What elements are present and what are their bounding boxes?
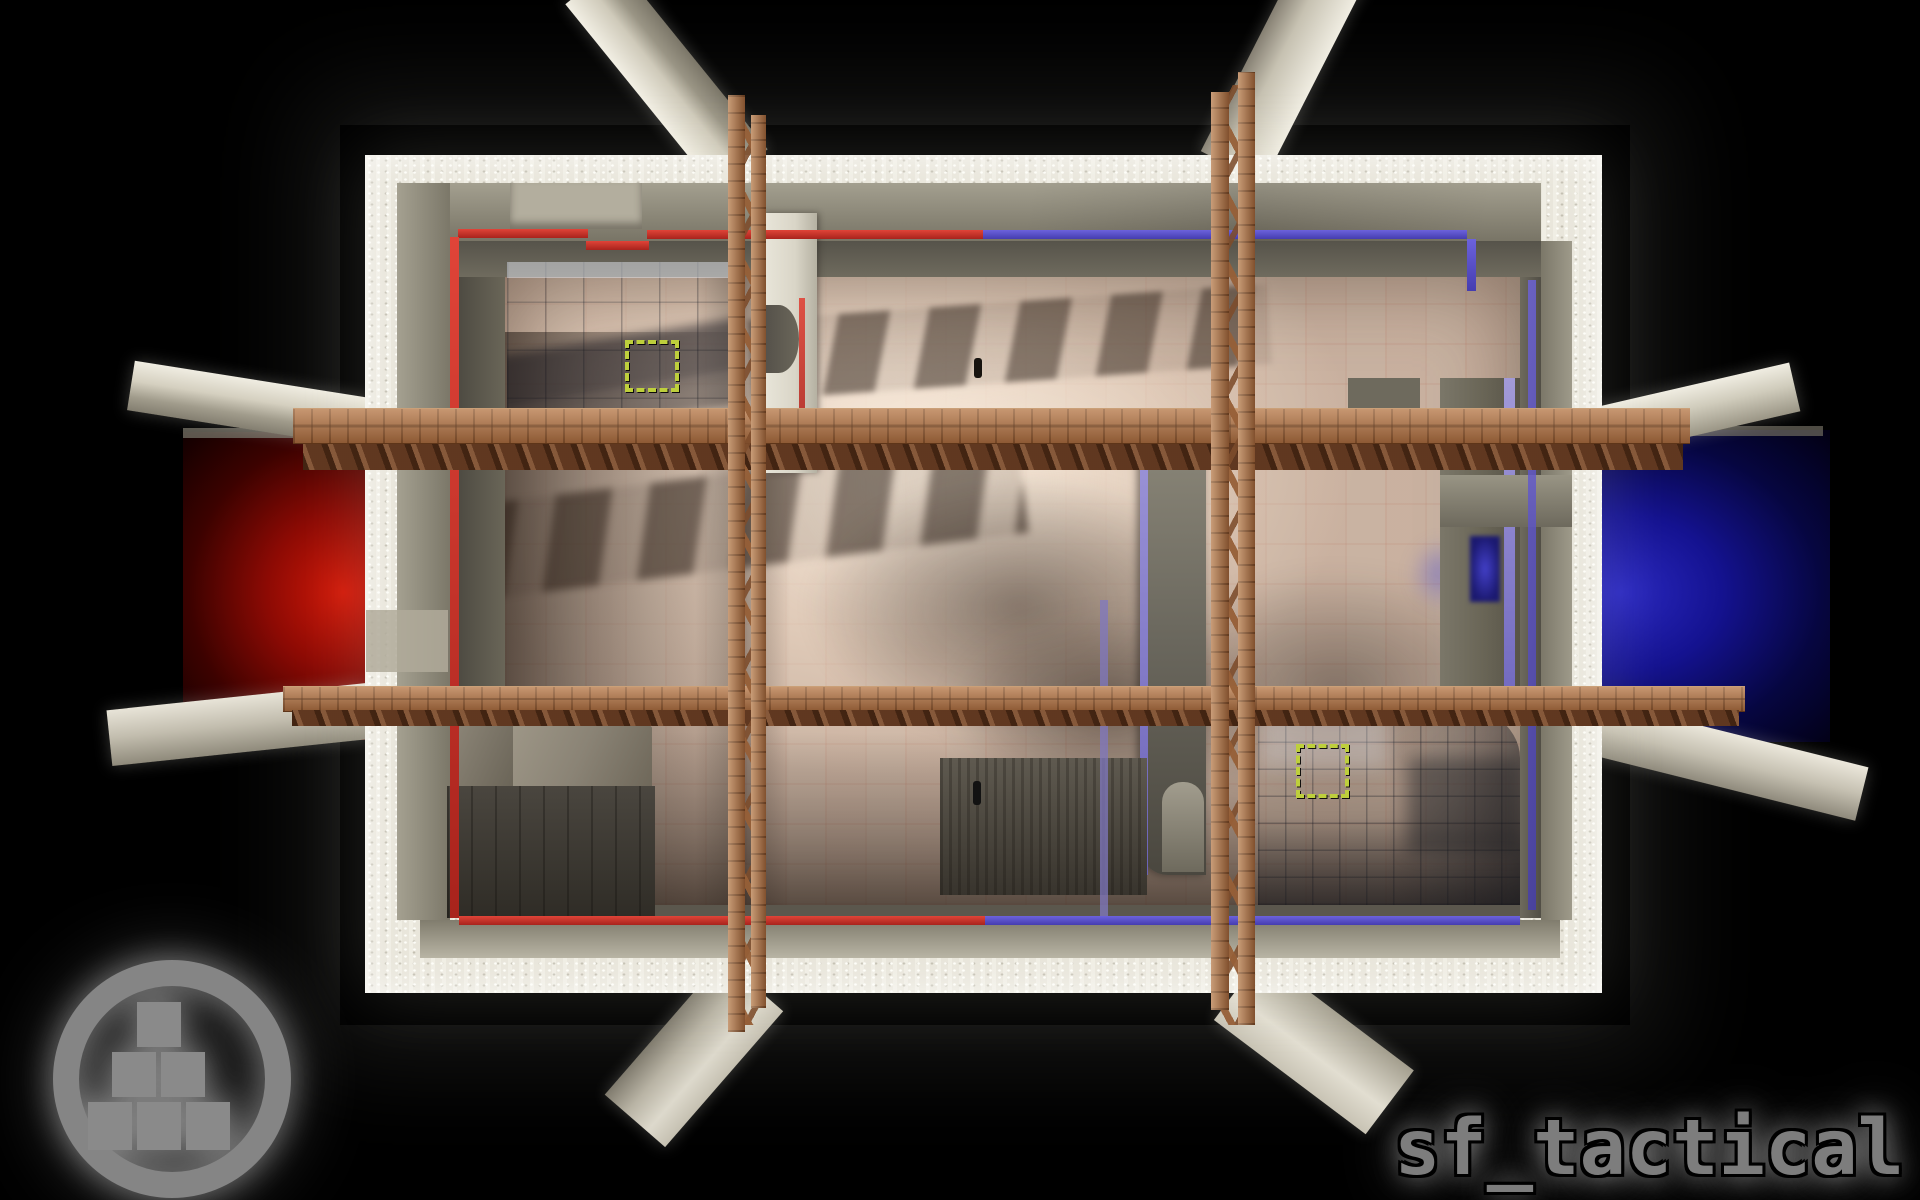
wall-top-east [1541,241,1572,920]
south-center-wall [940,758,1147,895]
red-stripe-west [450,237,459,918]
wood-beam-north [293,408,1690,444]
floor-object-small-1 [974,358,982,378]
map-title: sf_tactical [1394,1110,1904,1187]
red-stripe-south [459,916,985,925]
blue-stripe-east [1528,280,1536,910]
wall-top-south [420,920,1560,958]
red-stripe-north-jog [586,241,649,250]
southeast-tiled-floor [1258,698,1520,905]
wall-top-north-ledge [510,183,642,229]
northwest-floor-shadow-band [507,318,731,411]
scaffold-truss-west-rail-left [728,95,745,1032]
map-logo-watermark [50,955,295,1200]
center-wall-structure [1140,438,1206,875]
south-area-purple-edge [1100,600,1108,916]
scaffold-truss-west-rail-right [751,115,766,1008]
southwest-block-lower [447,786,655,918]
red-stripe-north-b [647,230,983,239]
logo-block-bottom-left [88,1102,132,1150]
buyzone-marker-southeast [1296,744,1349,798]
game-screenshot-stage: sf_tactical [0,0,1920,1200]
east-wall-doorway-glow [1470,536,1500,602]
wood-beam-north-web [303,444,1683,470]
south-wall-bolt-object [973,781,981,805]
floor-shadow-truss-band-1 [748,284,1272,400]
southeast-floor-shadow-east [1386,698,1520,905]
blue-stripe-north-corner [1467,239,1476,291]
wood-beam-south [283,686,1745,712]
scaffold-truss-east-rail-left [1211,92,1229,1010]
red-stripe-north-a [458,229,588,238]
east-connector-wall [1440,475,1572,527]
logo-block-mid-left [112,1052,156,1097]
center-wall-arch-block [1162,782,1204,872]
east-upper-wall-stub [1348,378,1420,410]
wall-top-west-ledge [366,610,448,672]
northwest-floor-lit-edge [507,262,731,278]
southeast-floor-shadow-south [1258,818,1520,905]
logo-block-bottom-right [186,1102,230,1150]
logo-block-mid-right [161,1052,205,1097]
wall-top-west [397,183,450,920]
scaffold-truss-east-rail-right [1238,72,1255,1025]
arch-doorway [765,305,799,373]
logo-block-top [137,1002,181,1047]
logo-block-bottom-mid [137,1102,181,1150]
southeast-floor-shadow-blob [1408,758,1520,853]
wood-beam-south-web [292,710,1739,726]
buyzone-marker-northwest [625,340,679,392]
